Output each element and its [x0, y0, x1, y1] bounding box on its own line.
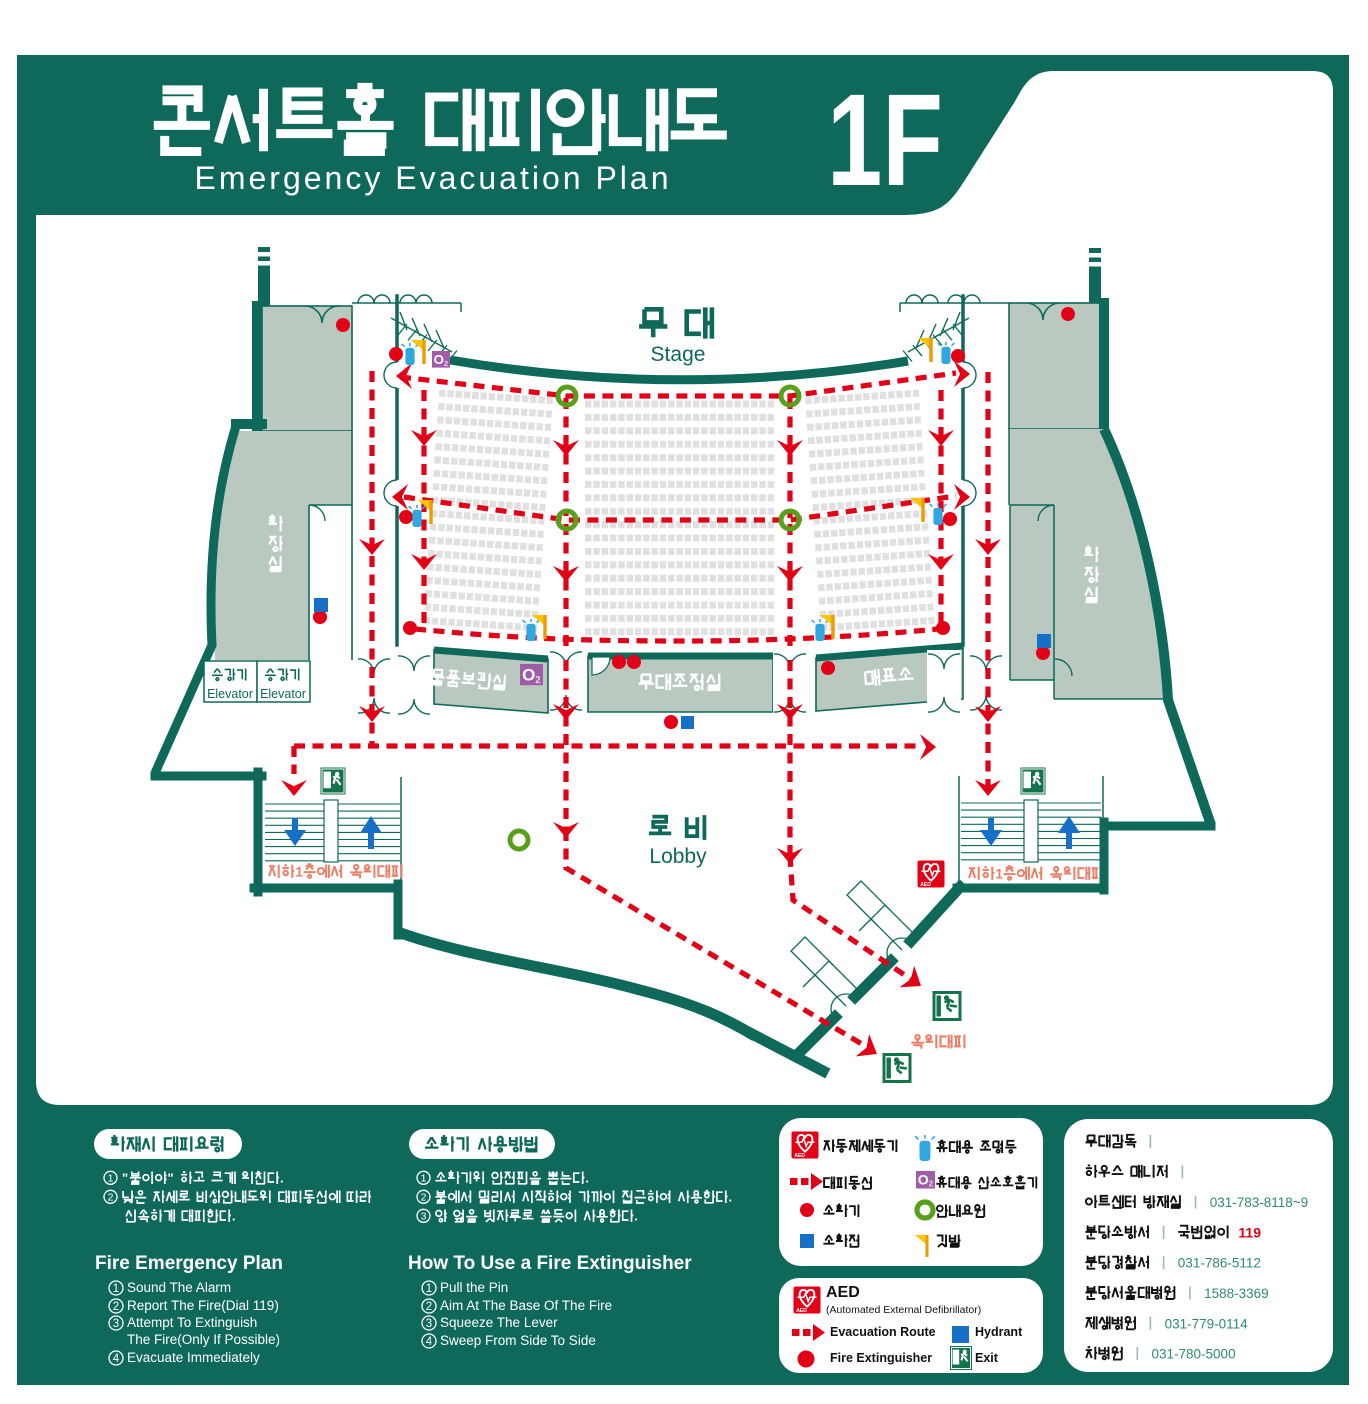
- svg-text:2: 2: [113, 1301, 119, 1313]
- svg-text:Squeeze The Lever: Squeeze The Lever: [440, 1315, 558, 1330]
- svg-text:3: 3: [113, 1318, 119, 1330]
- svg-text:Sound The Alarm: Sound The Alarm: [127, 1280, 231, 1295]
- svg-text:031-780-5000: 031-780-5000: [1152, 1347, 1236, 1362]
- svg-text:4: 4: [426, 1336, 433, 1348]
- svg-text:Evacuate Immediately: Evacuate Immediately: [127, 1350, 260, 1365]
- svg-text:1588-3369: 1588-3369: [1204, 1286, 1269, 1301]
- svg-text:.: .: [232, 1209, 236, 1224]
- svg-text:3: 3: [426, 1318, 432, 1330]
- svg-text:Attempt To Extinguish: Attempt To Extinguish: [127, 1315, 257, 1330]
- svg-text:031-783-8118~9: 031-783-8118~9: [1210, 1195, 1308, 1210]
- svg-text:2: 2: [444, 359, 448, 368]
- svg-text:Elevator: Elevator: [260, 687, 306, 701]
- svg-text:AED: AED: [794, 1153, 805, 1159]
- svg-text:Emergency Evacuation Plan: Emergency Evacuation Plan: [195, 160, 672, 196]
- svg-text:Hydrant: Hydrant: [975, 1325, 1023, 1339]
- svg-text:": ": [168, 1171, 174, 1186]
- svg-text:2: 2: [535, 675, 540, 686]
- svg-text:031-779-0114: 031-779-0114: [1165, 1316, 1249, 1331]
- svg-text:AED: AED: [920, 882, 931, 888]
- svg-text:Evacuation Route: Evacuation Route: [830, 1325, 936, 1339]
- svg-text:1: 1: [421, 1172, 427, 1184]
- svg-text:2: 2: [426, 1301, 432, 1313]
- svg-text:1: 1: [426, 1283, 432, 1295]
- svg-text:.: .: [634, 1209, 638, 1224]
- svg-text:.: .: [280, 1171, 284, 1186]
- svg-text:1: 1: [113, 1283, 119, 1295]
- svg-text:3: 3: [421, 1210, 427, 1222]
- svg-text:Lobby: Lobby: [649, 845, 707, 868]
- svg-text:Fire Emergency Plan: Fire Emergency Plan: [95, 1253, 283, 1274]
- svg-text:O: O: [434, 352, 444, 367]
- svg-text:.: .: [585, 1171, 589, 1186]
- svg-text:.: .: [729, 1190, 733, 1205]
- svg-text:O: O: [918, 1172, 929, 1188]
- svg-text:1: 1: [995, 866, 1003, 882]
- svg-text:": ": [122, 1171, 128, 1186]
- svg-text:2: 2: [421, 1191, 427, 1203]
- svg-text:Sweep From Side To Side: Sweep From Side To Side: [440, 1333, 596, 1348]
- svg-text:The Fire(Only If Possible): The Fire(Only If Possible): [127, 1332, 280, 1347]
- svg-text:Pull the Pin: Pull the Pin: [440, 1280, 508, 1295]
- svg-text:AED: AED: [826, 1284, 860, 1301]
- svg-text:1F: 1F: [827, 66, 943, 213]
- svg-text:AED: AED: [796, 1308, 807, 1314]
- svg-text:119: 119: [1238, 1224, 1261, 1240]
- svg-text:(Automated External Defibrilla: (Automated External Defibrillator): [826, 1304, 981, 1316]
- svg-text:1: 1: [295, 864, 303, 880]
- svg-text:Exit: Exit: [975, 1351, 999, 1365]
- svg-text:O: O: [522, 666, 535, 685]
- svg-text:Report The Fire(Dial 119): Report The Fire(Dial 119): [127, 1298, 279, 1313]
- svg-text:2: 2: [929, 1180, 934, 1189]
- svg-text:How To Use a Fire Extinguisher: How To Use a Fire Extinguisher: [408, 1253, 692, 1274]
- svg-text:Fire Extinguisher: Fire Extinguisher: [830, 1351, 932, 1365]
- svg-text:Elevator: Elevator: [207, 687, 253, 701]
- svg-text:Aim At The Base Of The Fire: Aim At The Base Of The Fire: [440, 1298, 612, 1313]
- svg-text:Stage: Stage: [651, 343, 706, 366]
- svg-text:1: 1: [108, 1172, 114, 1184]
- svg-text:031-786-5112: 031-786-5112: [1178, 1256, 1261, 1271]
- svg-text:4: 4: [113, 1353, 120, 1365]
- svg-text:2: 2: [108, 1191, 114, 1203]
